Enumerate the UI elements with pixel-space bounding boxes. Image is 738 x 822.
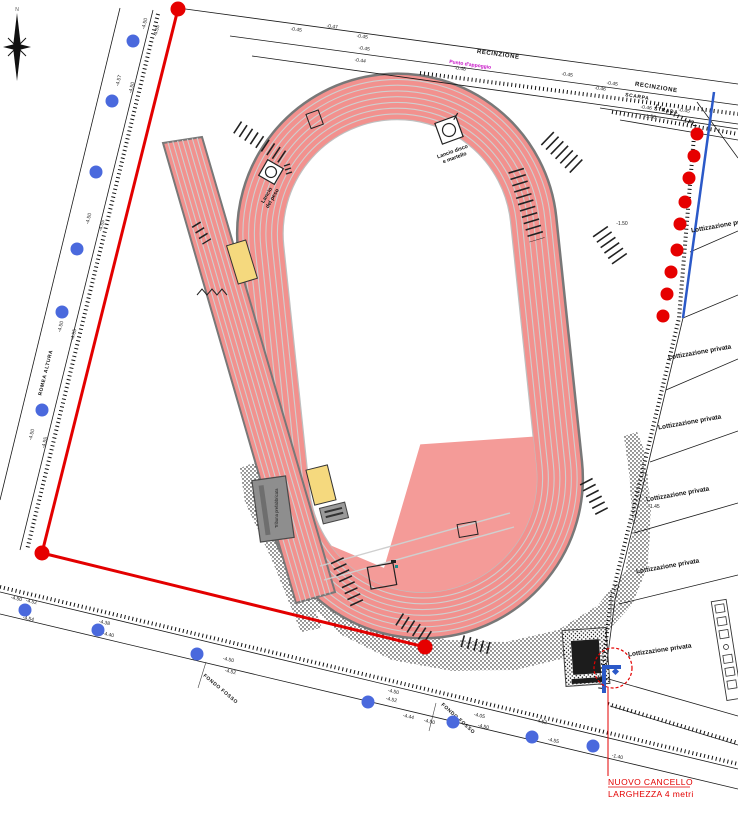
elevation-label: -4.57: [115, 74, 124, 87]
left-road-name: ROMEA ALTURA: [37, 349, 54, 396]
elevation-label: -4.52: [224, 668, 237, 676]
red-fence-marker: [657, 310, 670, 323]
blue-boundary-marker: [56, 306, 69, 319]
elevation-label: -0.47: [326, 23, 338, 31]
blue-boundary-marker: [526, 731, 539, 744]
elevation-label: -0.44: [354, 57, 366, 65]
top-road-edge-4: [620, 120, 738, 140]
strada-label: STRADA: [654, 106, 679, 116]
red-fence-marker: [674, 218, 687, 231]
red-boundary-corner-marker: [171, 2, 186, 17]
parcel-labels: Lottizzazione privata Lottizzazione priv…: [628, 216, 738, 658]
elevation-label: -0.46: [594, 85, 606, 93]
elevation-label: -4.50: [85, 212, 94, 225]
parcel-label-3: Lottizzazione privata: [646, 485, 711, 503]
blue-boundary-marker: [106, 95, 119, 108]
compass-n-label: N: [15, 7, 19, 13]
small-equipment-mark: [391, 560, 396, 563]
red-fence-marker: [665, 266, 678, 279]
elevation-label: -4.50: [10, 595, 23, 603]
elevation-label: -4.52: [385, 696, 398, 704]
elevation-label: -0.45: [356, 33, 368, 41]
gate-note-line1: NUOVO CANCELLO: [608, 777, 693, 787]
elevation-label: -0.45: [561, 71, 573, 79]
red-boundary-corner-marker: [35, 546, 50, 561]
elevation-label: -4.55: [98, 219, 107, 232]
elevation-label: -1.45: [648, 504, 660, 510]
elevation-label: -4.50: [28, 428, 37, 441]
gate-note-line2: LARGHEZZA 4 metri: [608, 789, 694, 799]
elevation-label: -4.52: [535, 718, 548, 726]
blue-boundary-marker: [127, 35, 140, 48]
parcel-label-2: Lottizzazione privata: [658, 413, 723, 431]
blue-boundary-marker: [362, 696, 375, 709]
site-plan-drawing: Tribuna prefabbricata: [0, 0, 738, 822]
blue-boundary-marker: [447, 716, 460, 729]
red-fence-marker: [671, 244, 684, 257]
elevation-label: -4.44: [402, 713, 415, 721]
boundary-wall-posts: [711, 599, 738, 700]
red-fence-marker: [688, 150, 701, 163]
elevation-label: -0.46: [454, 65, 466, 73]
top-right-diagonal: [697, 102, 738, 158]
elevation-label: -0.45: [290, 26, 302, 34]
elevation-label: -1.50: [616, 221, 628, 227]
red-boundary-west: [42, 9, 178, 553]
bottom-right-road-hatch: [608, 704, 738, 743]
gate-hinge-mark: [612, 668, 619, 675]
grandstand-label: Tribuna prefabbricata: [274, 488, 279, 528]
elevation-label: -4.50: [222, 656, 235, 664]
recinzione-label-1: RECINZIONE: [476, 49, 519, 61]
parcel-label-1: Lottizzazione privata: [668, 343, 733, 361]
red-boundary-corner-marker: [418, 640, 433, 655]
blue-boundary-marker: [92, 624, 105, 637]
elevation-label: -1.40: [611, 753, 624, 761]
elevation-label: -4.55: [70, 328, 79, 341]
top-fence-line: [178, 8, 738, 84]
elevation-label: -0.45: [678, 107, 690, 115]
red-fence-marker: [683, 172, 696, 185]
recinzione-label-2: RECINZIONE: [634, 82, 677, 95]
elevation-label: -4.50: [423, 718, 436, 726]
elevation-label: -4.50: [387, 688, 400, 696]
left-road-edge-1: [0, 8, 120, 500]
scarpa-label: SCARPA: [625, 92, 650, 102]
blue-boundary-marker: [587, 740, 600, 753]
blue-boundary-marker: [36, 404, 49, 417]
elevation-label: -0.45: [606, 80, 618, 88]
elevation-label: -4.50: [141, 17, 150, 30]
site-plan-canvas: Tribuna prefabbricata: [0, 0, 738, 822]
parcel-label-5: Lottizzazione privata: [628, 643, 693, 659]
blue-boundary-marker: [90, 166, 103, 179]
elevation-label: -4.55: [41, 436, 50, 449]
top-road-edge-1: [230, 36, 738, 105]
blue-boundary-marker: [19, 604, 32, 617]
north-compass-icon: N: [3, 7, 31, 81]
left-road-hatch: [27, 14, 158, 550]
elevation-label: -1.45: [682, 118, 694, 126]
elevation-label: -4.50: [57, 320, 66, 333]
elevation-label: -0.45: [358, 45, 370, 53]
small-equipment-mark-teal: [395, 565, 398, 568]
elevation-label: -4.05: [473, 712, 486, 720]
red-fence-marker: [691, 128, 704, 141]
blue-boundary-marker: [191, 648, 204, 661]
red-fence-marker: [661, 288, 674, 301]
red-fence-marker: [679, 196, 692, 209]
elevation-label: -4.50: [128, 81, 137, 94]
elevation-label: -4.50: [477, 723, 490, 731]
fosso-label-1: FONDO FOSSO: [202, 673, 239, 706]
blue-boundary-marker: [71, 243, 84, 256]
elevation-label: -1.50: [644, 113, 656, 121]
